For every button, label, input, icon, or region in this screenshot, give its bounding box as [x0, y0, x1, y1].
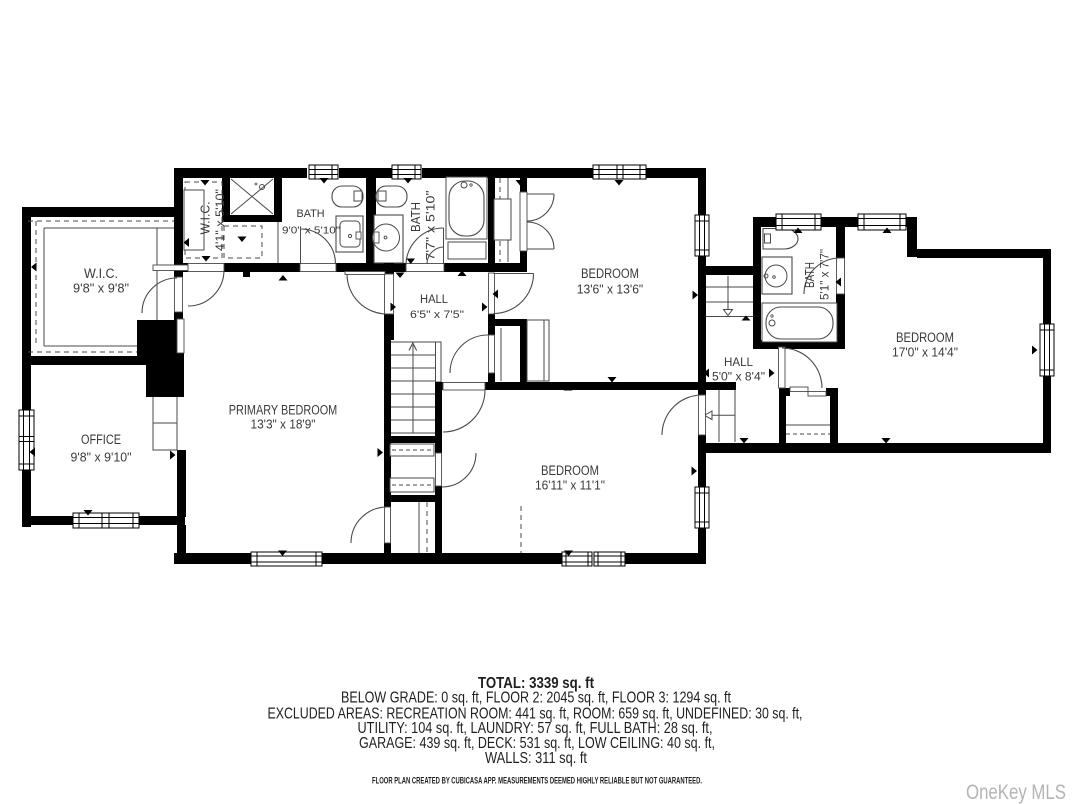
svg-text:BELOW GRADE: 0 sq. ft, FLOOR 2: BELOW GRADE: 0 sq. ft, FLOOR 2: 2045 sq.… [341, 690, 732, 707]
svg-text:9'8" x 9'8": 9'8" x 9'8" [73, 282, 129, 296]
svg-text:OneKey MLS: OneKey MLS [966, 781, 1066, 804]
svg-text:9'0" x 5'10": 9'0" x 5'10" [282, 225, 340, 237]
svg-text:WALLS: 311 sq. ft: WALLS: 311 sq. ft [485, 750, 588, 767]
svg-text:BEDROOM: BEDROOM [581, 266, 639, 281]
svg-text:BATH: BATH [297, 208, 325, 220]
svg-text:17'0" x 14'4": 17'0" x 14'4" [892, 346, 958, 360]
svg-text:6'5" x 7'5": 6'5" x 7'5" [410, 309, 464, 321]
svg-text:W.I.C.: W.I.C. [199, 202, 213, 235]
svg-text:7'7" x 5'10": 7'7" x 5'10" [424, 191, 438, 261]
svg-text:5'1" x 7'7": 5'1" x 7'7" [818, 249, 832, 300]
svg-text:BATH: BATH [408, 202, 423, 232]
svg-text:OFFICE: OFFICE [81, 432, 121, 447]
svg-text:13'6" x 13'6": 13'6" x 13'6" [577, 283, 644, 297]
svg-text:W.I.C.: W.I.C. [84, 266, 118, 281]
svg-text:BEDROOM: BEDROOM [541, 463, 599, 478]
svg-text:HALL: HALL [724, 355, 753, 369]
svg-text:9'8" x 9'10": 9'8" x 9'10" [71, 451, 132, 465]
svg-text:13'3" x 18'9": 13'3" x 18'9" [251, 418, 316, 432]
svg-text:4'1" x 5'10": 4'1" x 5'10" [213, 189, 227, 251]
svg-text:5'0" x 8'4": 5'0" x 8'4" [712, 372, 765, 384]
svg-text:16'11" x 11'1": 16'11" x 11'1" [535, 479, 605, 493]
svg-text:PRIMARY BEDROOM: PRIMARY BEDROOM [229, 403, 338, 418]
svg-text:FLOOR PLAN CREATED BY CUBICASA: FLOOR PLAN CREATED BY CUBICASA APP. MEAS… [372, 776, 702, 786]
svg-text:BATH: BATH [803, 262, 817, 288]
svg-text:BEDROOM: BEDROOM [896, 330, 954, 345]
svg-text:HALL: HALL [420, 294, 449, 306]
